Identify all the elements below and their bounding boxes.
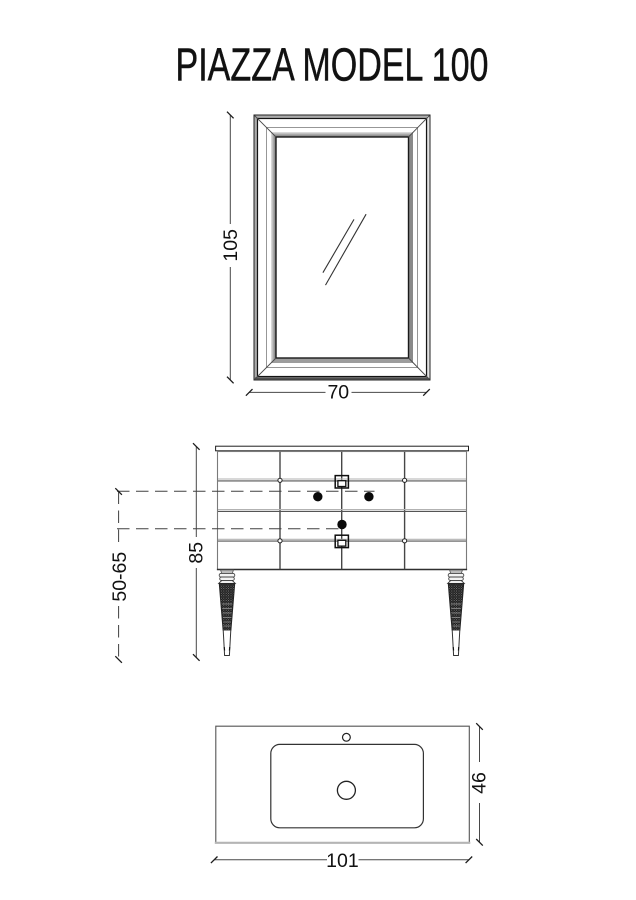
svg-text:50-65: 50-65 [109,552,131,602]
svg-text:101: 101 [326,850,359,872]
svg-text:105: 105 [220,229,242,262]
svg-text:85: 85 [185,542,207,564]
svg-text:46: 46 [468,772,490,794]
svg-text:70: 70 [327,381,349,403]
svg-text:PIAZZA MODEL 100: PIAZZA MODEL 100 [176,39,489,91]
